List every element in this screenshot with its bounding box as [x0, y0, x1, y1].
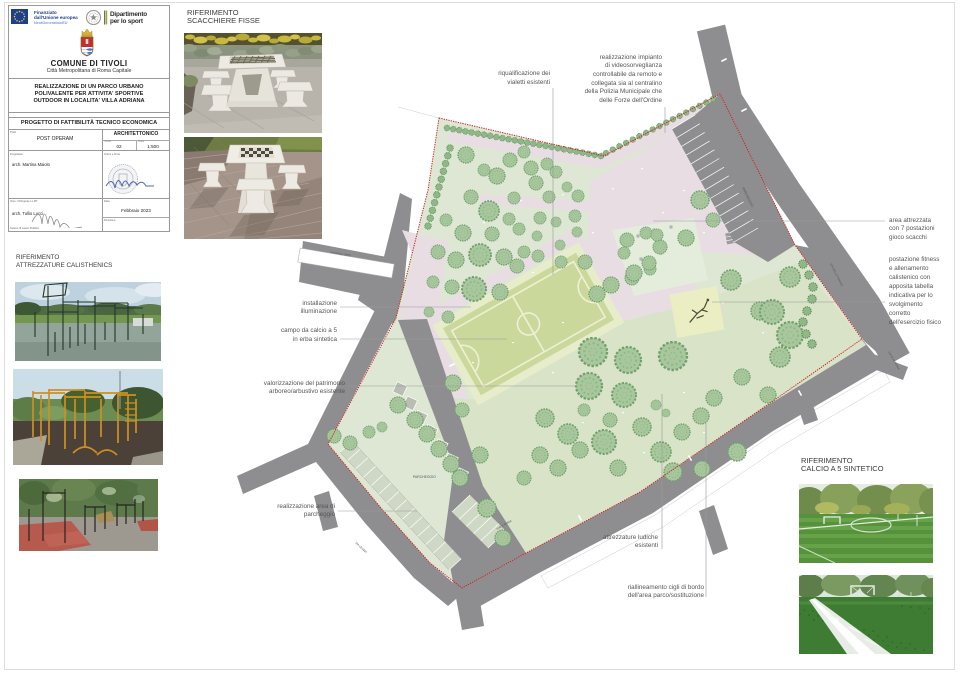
svg-text:PARCHEGGIO: PARCHEGGIO: [413, 475, 436, 479]
svg-text:VIA LESINA: VIA LESINA: [354, 541, 368, 554]
